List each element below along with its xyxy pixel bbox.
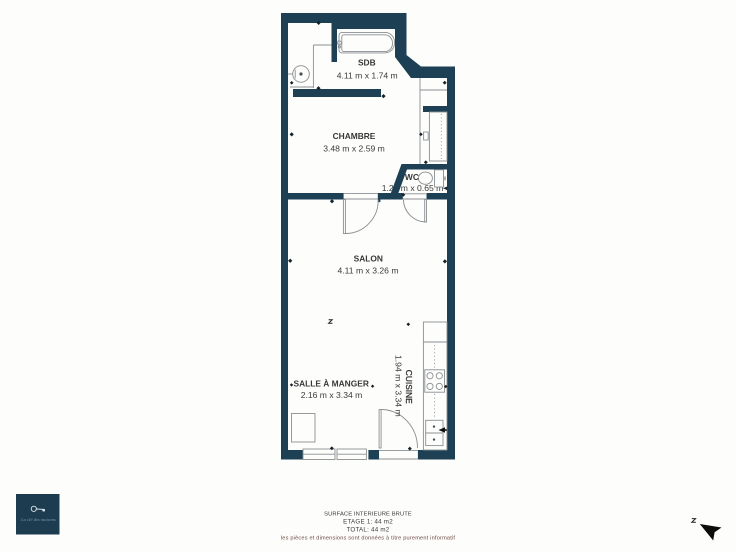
svg-text:La clé des maisons: La clé des maisons [20, 517, 56, 522]
svg-text:les pièces et dimensions sont: les pièces et dimensions sont données à … [281, 535, 456, 541]
svg-text:TOTAL: 44 m2: TOTAL: 44 m2 [346, 527, 389, 534]
svg-text:SURFACE INTERIEURE BRUTE: SURFACE INTERIEURE BRUTE [324, 512, 412, 518]
svg-text:2.16 m x 3.34 m: 2.16 m x 3.34 m [301, 390, 363, 400]
svg-text:4.11 m x 3.26 m: 4.11 m x 3.26 m [338, 266, 399, 276]
svg-text:4.11 m x 1.74 m: 4.11 m x 1.74 m [337, 71, 398, 81]
svg-text:CHAMBRE: CHAMBRE [333, 131, 376, 141]
svg-text:CUISINE: CUISINE [404, 370, 414, 404]
svg-text:3.48 m x 2.59 m: 3.48 m x 2.59 m [323, 144, 385, 154]
svg-text:ETAGE 1: 44 m2: ETAGE 1: 44 m2 [343, 519, 393, 526]
svg-text:SALLE À MANGER: SALLE À MANGER [294, 378, 369, 389]
svg-text:WC: WC [405, 172, 419, 182]
svg-text:SDB: SDB [358, 58, 376, 68]
svg-text:1.94 m x 3.34 m: 1.94 m x 3.34 m [394, 355, 404, 417]
svg-text:SALON: SALON [354, 254, 383, 264]
